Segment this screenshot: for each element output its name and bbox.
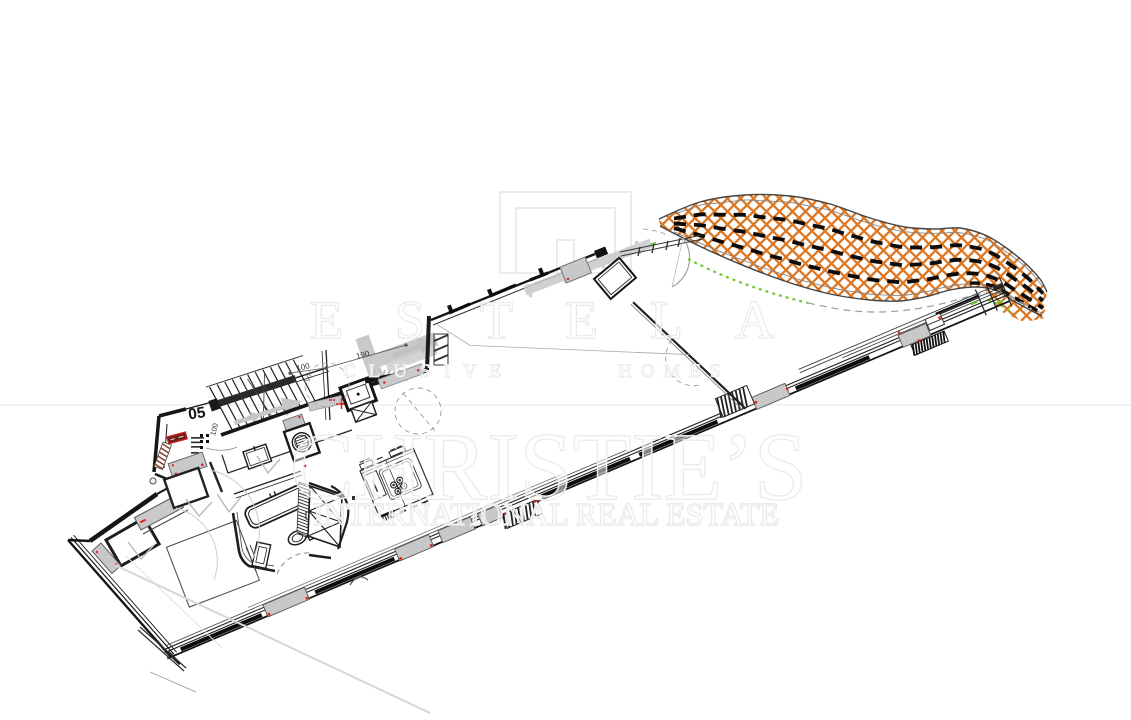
svg-text:INTERNATIONAL REAL ESTATE: INTERNATIONAL REAL ESTATE bbox=[313, 496, 779, 532]
svg-text:HOMES: HOMES bbox=[618, 361, 730, 382]
svg-text:E: E bbox=[565, 290, 598, 350]
svg-text:CLUSIVE: CLUSIVE bbox=[343, 361, 514, 382]
svg-text:A: A bbox=[735, 290, 774, 350]
svg-text:S: S bbox=[395, 290, 425, 350]
svg-text:L: L bbox=[650, 290, 683, 350]
svg-text:E: E bbox=[310, 290, 343, 350]
svg-text:T: T bbox=[480, 290, 513, 350]
svg-text:05: 05 bbox=[187, 404, 207, 423]
